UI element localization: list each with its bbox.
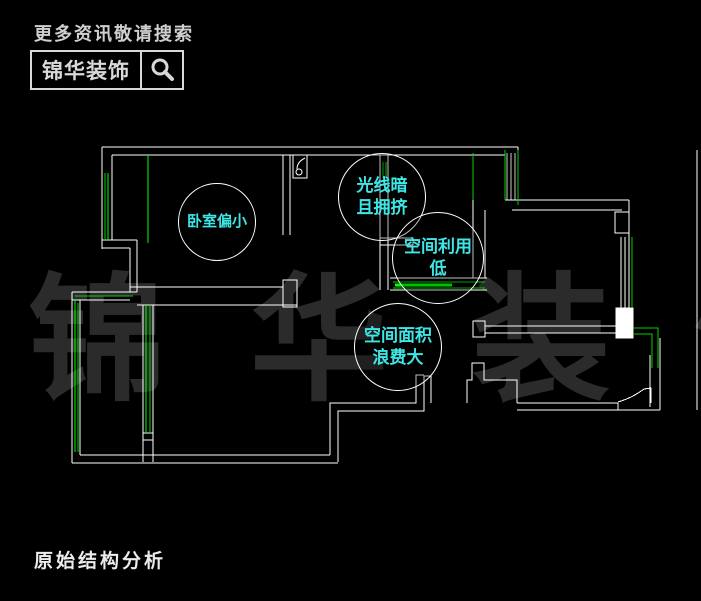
annotation-wasted-area: 空间面积 浪费大 bbox=[354, 303, 442, 391]
brand-logo-box: 锦华装饰 bbox=[30, 50, 184, 90]
magnifier-icon bbox=[149, 57, 175, 83]
annotation-text: 空间利用 bbox=[404, 236, 472, 258]
door-arc bbox=[618, 388, 651, 403]
annotation-text: 浪费大 bbox=[373, 347, 424, 369]
door-symbol bbox=[293, 155, 307, 178]
brand-name: 锦华装饰 bbox=[32, 52, 140, 88]
annotation-bedroom-small: 卧室偏小 bbox=[178, 183, 256, 261]
annotation-low-utilization: 空间利用 低 bbox=[392, 212, 484, 304]
search-tagline: 更多资讯敬请搜索 bbox=[34, 20, 194, 46]
annotation-text: 卧室偏小 bbox=[187, 212, 247, 232]
annotation-text: 且拥挤 bbox=[357, 197, 408, 219]
page-title: 原始结构分析 bbox=[34, 546, 166, 573]
annotation-text: 空间面积 bbox=[364, 325, 432, 347]
search-button[interactable] bbox=[140, 52, 182, 88]
screenshot-root: 锦 华 装 饰 bbox=[0, 0, 701, 601]
annotation-text: 光线暗 bbox=[357, 175, 408, 197]
floor-plan-svg bbox=[0, 0, 701, 601]
annotation-text: 低 bbox=[430, 258, 447, 280]
